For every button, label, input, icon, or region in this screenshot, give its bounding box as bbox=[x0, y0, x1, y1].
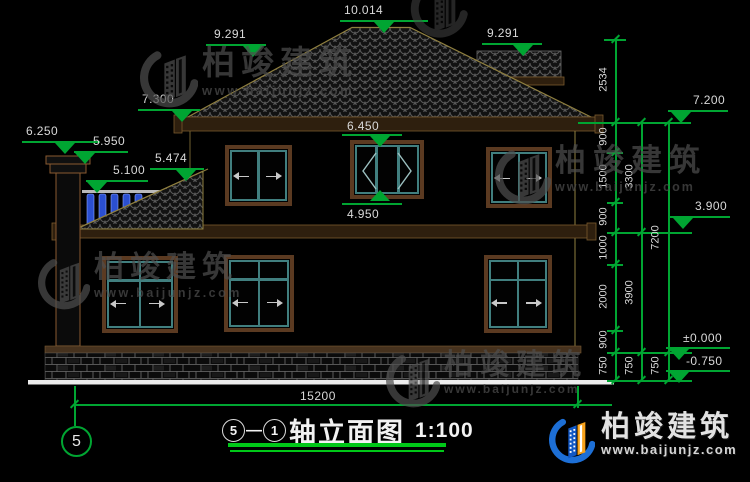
brand-name: 柏竣建筑 bbox=[601, 412, 737, 442]
dim-label: 750 bbox=[599, 336, 610, 396]
watermark-url: www.baijunjz.com bbox=[555, 180, 707, 194]
watermark: 柏竣建筑 www.baijunjz.com bbox=[386, 350, 588, 410]
window-frame bbox=[230, 150, 287, 201]
window-1f-right bbox=[484, 255, 552, 333]
watermark-name: 柏竣建筑 bbox=[444, 350, 588, 380]
brand-url: www.baijunjz.com bbox=[601, 442, 737, 457]
dim-label: 3900 bbox=[625, 263, 636, 323]
elevation-drawing-canvas: 10.014 9.291 9.291 7.300 6.250 5.950 5.1… bbox=[0, 0, 750, 482]
casement-chevron-icon bbox=[359, 150, 379, 192]
dim-label: 7200 bbox=[651, 208, 662, 268]
elevation-label: 7.200 bbox=[693, 94, 725, 106]
watermark-logo-icon bbox=[386, 350, 440, 410]
axis-bubble-label: 5 bbox=[72, 433, 81, 451]
elevation-label: 6.250 bbox=[26, 125, 58, 137]
watermark-logo-icon bbox=[404, 0, 474, 40]
slide-arrow-icon bbox=[239, 176, 249, 178]
watermark-name: 柏竣建筑 bbox=[94, 252, 242, 284]
elevation-label: 5.950 bbox=[93, 135, 125, 147]
window-mullion bbox=[258, 262, 261, 325]
chimney bbox=[46, 156, 90, 346]
elevation-label: 4.950 bbox=[347, 208, 379, 220]
elevation-label: 9.291 bbox=[487, 27, 519, 39]
window-frame bbox=[355, 145, 419, 194]
slide-arrow-icon bbox=[497, 302, 507, 304]
window-mullion bbox=[517, 262, 520, 326]
elevation-label: 10.014 bbox=[344, 4, 383, 16]
slide-arrow-icon bbox=[526, 302, 536, 304]
elevation-label: 9.291 bbox=[214, 28, 246, 40]
title-axis-circle-from: 5 bbox=[222, 419, 245, 442]
watermark-url: www.baijunjz.com bbox=[94, 286, 242, 300]
axis-bubble-5: 5 bbox=[61, 426, 92, 457]
building-elevation bbox=[0, 0, 750, 482]
dim-label: 15200 bbox=[300, 389, 336, 403]
dim-label: 750 bbox=[625, 336, 636, 396]
brand-logo-icon bbox=[549, 412, 595, 468]
slide-arrow-icon bbox=[266, 176, 276, 178]
elevation-label: -0.750 bbox=[686, 355, 722, 367]
title-axis-circle-to: 1 bbox=[263, 419, 286, 442]
window-frame bbox=[489, 260, 547, 328]
watermark-name: 柏竣建筑 bbox=[555, 145, 707, 178]
slide-arrow-icon bbox=[267, 302, 277, 304]
title-underline-2 bbox=[230, 450, 444, 452]
dim-label: 2534 bbox=[599, 50, 610, 110]
window-mullion bbox=[257, 152, 260, 199]
dim-label: 750 bbox=[651, 336, 662, 396]
brand-block: 柏竣建筑 www.baijunjz.com bbox=[549, 412, 737, 468]
elevation-label: ±0.000 bbox=[683, 332, 722, 344]
window-2f-left bbox=[225, 145, 292, 206]
title-scale: 1:100 bbox=[415, 419, 474, 443]
watermark-url: www.baijunjz.com bbox=[202, 83, 358, 98]
title-dash: — bbox=[246, 422, 262, 440]
watermark: 柏竣建筑 www.baijunjz.com bbox=[495, 145, 707, 207]
casement-chevron-icon bbox=[395, 150, 415, 192]
watermark-url: www.baijunjz.com bbox=[444, 382, 588, 396]
elevation-label: 6.450 bbox=[347, 120, 379, 132]
watermark: 柏竣建筑 www.baijunjz.com bbox=[140, 46, 358, 110]
elevation-label: 5.474 bbox=[155, 152, 187, 164]
watermark: 柏竣建筑 www.baijunjz.com bbox=[38, 252, 242, 314]
watermark-logo-icon bbox=[140, 46, 198, 110]
watermark-name: 柏竣建筑 bbox=[202, 46, 358, 81]
title-underline bbox=[228, 443, 446, 447]
window-transom bbox=[491, 279, 545, 282]
watermark-logo-icon bbox=[495, 145, 551, 207]
watermark-logo-icon bbox=[38, 252, 90, 314]
elevation-label: 5.100 bbox=[113, 164, 145, 176]
